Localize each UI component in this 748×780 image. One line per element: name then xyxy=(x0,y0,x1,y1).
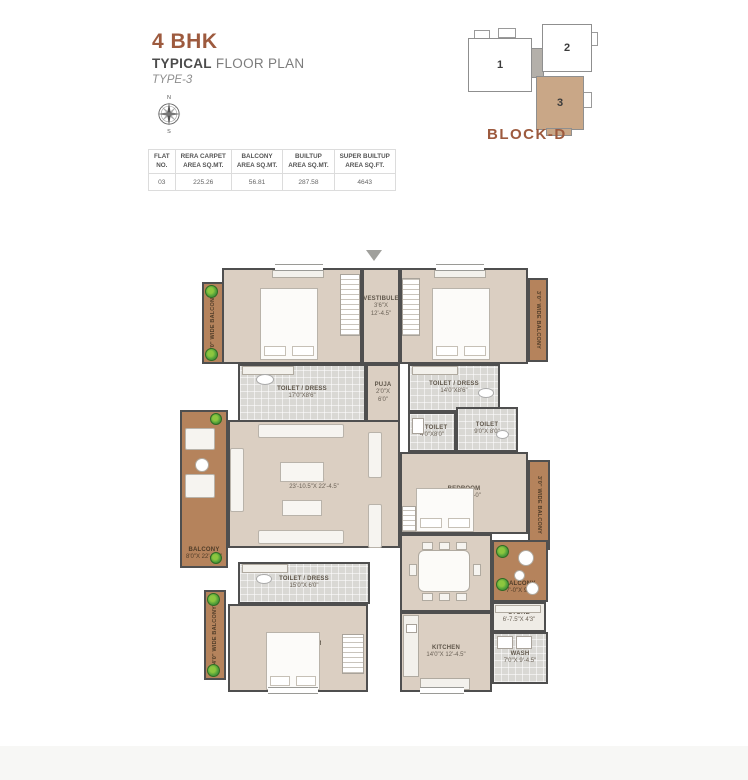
room-label: WASH xyxy=(511,651,530,657)
room-dims: 6'-7.5"X 4'3" xyxy=(503,617,536,625)
window xyxy=(436,264,484,271)
wardrobe xyxy=(402,278,420,336)
dresser xyxy=(434,270,486,278)
vanity-counter xyxy=(412,366,458,375)
round-table xyxy=(526,582,539,595)
dining-table xyxy=(418,550,470,592)
window xyxy=(420,687,464,694)
plant xyxy=(207,593,220,606)
store-shelf xyxy=(495,605,541,613)
room-label: 3'0" WIDE BALCONY xyxy=(535,291,541,349)
block-caption: BLOCK-D xyxy=(487,126,567,143)
room-toilet: TOILET9'0"X 8'0" xyxy=(456,407,518,452)
key-plan-block-1: 1 xyxy=(468,38,532,92)
table-header: BUILTUP AREA SQ.MT. xyxy=(283,150,334,174)
block-caption-letter: D xyxy=(554,126,566,143)
room-label: TOILET / DRESS xyxy=(277,386,327,392)
room-dims: 7'0"X 9'-4.5" xyxy=(504,658,537,666)
key-plan: 1 2 3 xyxy=(468,22,600,134)
sofa xyxy=(258,424,344,438)
subtitle-rest: FLOOR PLAN xyxy=(212,56,305,71)
key-plan-outline-fragment xyxy=(498,28,516,38)
window xyxy=(268,687,318,694)
room-dims: 2'0"X 6'0" xyxy=(376,389,390,405)
table-header: BALCONY AREA SQ.MT. xyxy=(231,150,282,174)
dining-chair xyxy=(409,564,417,576)
table-cell: 4643 xyxy=(334,174,395,191)
plant xyxy=(205,285,218,298)
wardrobe xyxy=(340,274,360,336)
dining-chair xyxy=(456,542,467,550)
room-puja: PUJA2'0"X 6'0" xyxy=(366,364,400,422)
table-row: 03225.2656.81287.584643 xyxy=(149,174,396,191)
bed xyxy=(260,288,318,360)
washbasin xyxy=(496,430,509,439)
room-label: PUJA xyxy=(375,382,392,388)
table-cell: 287.58 xyxy=(283,174,334,191)
dining-chair xyxy=(473,564,481,576)
room-label: 4'0" WIDE BALCONY xyxy=(212,606,218,664)
table-header-row: FLAT NO.RERA CARPET AREA SQ.MT.BALCONY A… xyxy=(149,150,396,174)
dresser xyxy=(272,270,324,278)
dining-chair xyxy=(439,593,450,601)
room-label: 4'0" WIDE BALCONY xyxy=(210,294,216,352)
room-dims: 14'0"X8'6" xyxy=(440,388,467,396)
sofa xyxy=(368,432,382,478)
balcony-seat xyxy=(185,428,215,450)
bed xyxy=(266,632,320,690)
kitchen-sink xyxy=(406,624,417,633)
washbasin xyxy=(256,574,272,584)
room-label: TOILET / DRESS xyxy=(429,381,479,387)
table-header: FLAT NO. xyxy=(149,150,176,174)
entry-arrow-icon xyxy=(366,250,382,261)
room-dims: 15'0"X 6'0" xyxy=(290,583,319,591)
washing-machine xyxy=(497,636,513,649)
title-block: 4 BHK TYPICAL FLOOR PLAN TYPE-3 xyxy=(152,30,304,86)
key-plan-block-2: 2 xyxy=(542,24,592,72)
block-caption-prefix: BLOCK- xyxy=(487,126,554,143)
type-label: TYPE-3 xyxy=(152,74,304,86)
room-dims: 14'0"X 12'-4.5" xyxy=(426,652,465,660)
balcony-seat xyxy=(185,474,215,498)
washbasin xyxy=(478,388,494,398)
compass-south-label: S xyxy=(152,130,186,136)
plant xyxy=(205,348,218,361)
plant xyxy=(207,664,220,677)
subtitle-bold: TYPICAL xyxy=(152,56,212,71)
room-balcony-top-right: 3'0" WIDE BALCONY xyxy=(528,278,548,362)
room-dims: 17'0"X8'6" xyxy=(288,393,315,401)
wardrobe xyxy=(342,634,364,674)
plant xyxy=(210,413,222,425)
table-header: RERA CARPET AREA SQ.MT. xyxy=(175,150,231,174)
compass-icon: N S xyxy=(152,96,186,135)
area-table: FLAT NO.RERA CARPET AREA SQ.MT.BALCONY A… xyxy=(148,149,396,191)
table-cell: 03 xyxy=(149,174,176,191)
key-plan-block-1-label: 1 xyxy=(497,59,503,71)
vanity-counter xyxy=(242,564,288,573)
room-vestibule: VESTIBULE3'6"X 12'-4.5" xyxy=(362,268,400,364)
dining-chair xyxy=(422,542,433,550)
room-dims: 23'-10.5"X 22'-4.5" xyxy=(289,484,339,492)
washing-machine xyxy=(516,636,532,649)
page-subtitle: TYPICAL FLOOR PLAN xyxy=(152,56,304,71)
room-label: TOILET xyxy=(476,422,498,428)
room-balcony-mid-right: 3'0" WIDE BALCONY xyxy=(528,460,550,550)
floor-plan: BEDROOM18'0"X12'0"4'0" WIDE BALCONYVESTI… xyxy=(180,262,552,696)
plant xyxy=(496,578,509,591)
plant xyxy=(210,552,222,564)
wardrobe xyxy=(402,506,416,532)
dining-chair xyxy=(422,593,433,601)
room-label: VESTIBULE xyxy=(363,296,398,302)
key-plan-block-3-highlighted: 3 xyxy=(536,76,584,130)
window xyxy=(275,264,323,271)
round-table xyxy=(518,550,534,566)
table-header: SUPER BUILTUP AREA SQ.FT. xyxy=(334,150,395,174)
washbasin xyxy=(256,374,274,385)
sofa xyxy=(258,530,344,544)
compass-rose xyxy=(157,102,181,126)
coffee-table xyxy=(280,462,324,482)
dining-chair xyxy=(439,542,450,550)
room-label: KITCHEN xyxy=(432,645,460,651)
page-margin-band xyxy=(0,746,748,780)
round-table xyxy=(514,570,525,581)
sofa xyxy=(368,504,382,548)
room-dims: 3'6"X 12'-4.5" xyxy=(371,303,391,319)
round-table xyxy=(195,458,209,472)
key-plan-block-2-label: 2 xyxy=(564,42,570,54)
key-plan-block-3-label: 3 xyxy=(557,97,563,109)
coffee-table xyxy=(282,500,322,516)
sofa xyxy=(230,448,244,512)
page-title: 4 BHK xyxy=(152,30,304,54)
room-label: TOILET / DRESS xyxy=(279,576,329,582)
table-cell: 56.81 xyxy=(231,174,282,191)
dining-chair xyxy=(456,593,467,601)
room-label: 3'0" WIDE BALCONY xyxy=(536,476,542,534)
table-cell: 225.26 xyxy=(175,174,231,191)
bed xyxy=(432,288,490,360)
bed xyxy=(416,488,474,532)
plant xyxy=(496,545,509,558)
wc xyxy=(412,418,424,434)
